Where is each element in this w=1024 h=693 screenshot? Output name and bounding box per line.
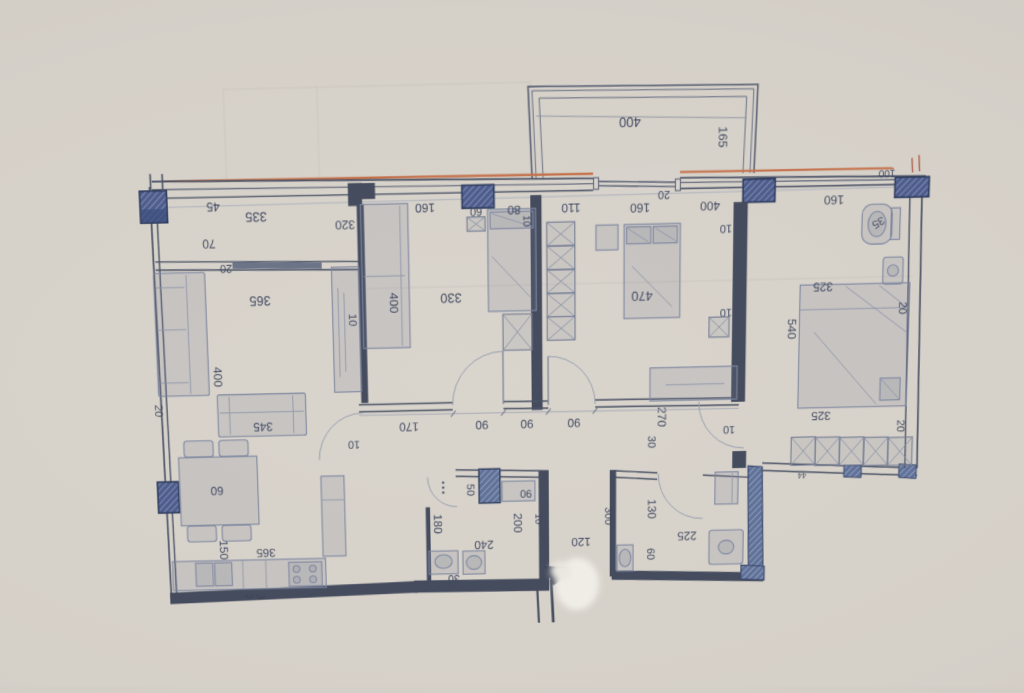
svg-text:120: 120 bbox=[571, 535, 590, 548]
svg-text:345: 345 bbox=[253, 420, 273, 434]
svg-text:160: 160 bbox=[824, 192, 844, 206]
svg-text:30: 30 bbox=[448, 572, 460, 584]
svg-text:70: 70 bbox=[202, 237, 216, 251]
svg-text:400: 400 bbox=[387, 293, 400, 314]
svg-text:10: 10 bbox=[346, 314, 358, 327]
svg-text:10: 10 bbox=[347, 438, 360, 451]
svg-text:165: 165 bbox=[716, 126, 730, 148]
svg-text:400: 400 bbox=[700, 198, 720, 212]
svg-text:325: 325 bbox=[813, 280, 833, 294]
svg-text:365: 365 bbox=[249, 293, 271, 308]
svg-text:325: 325 bbox=[811, 409, 831, 423]
svg-text:160: 160 bbox=[630, 200, 650, 214]
svg-text:90: 90 bbox=[475, 418, 488, 432]
svg-text:300: 300 bbox=[602, 507, 614, 526]
svg-text:470: 470 bbox=[631, 288, 653, 303]
svg-text:540: 540 bbox=[785, 319, 798, 340]
svg-text:100: 100 bbox=[878, 167, 895, 179]
svg-text:10: 10 bbox=[722, 423, 735, 436]
svg-text:150: 150 bbox=[217, 540, 230, 560]
svg-text:180: 180 bbox=[431, 514, 444, 534]
svg-text:10: 10 bbox=[533, 513, 544, 524]
svg-text:20: 20 bbox=[152, 405, 165, 418]
svg-text:10: 10 bbox=[719, 222, 732, 235]
svg-text:160: 160 bbox=[415, 200, 435, 214]
svg-text:200: 200 bbox=[511, 513, 524, 533]
svg-text:20: 20 bbox=[219, 262, 232, 275]
svg-text:400: 400 bbox=[211, 367, 225, 388]
svg-text:30: 30 bbox=[645, 436, 657, 449]
svg-text:60: 60 bbox=[469, 205, 482, 218]
svg-text:130: 130 bbox=[645, 499, 658, 519]
svg-text:60: 60 bbox=[210, 484, 223, 497]
svg-text:80: 80 bbox=[507, 203, 520, 217]
svg-text:10: 10 bbox=[520, 215, 531, 227]
svg-text:20: 20 bbox=[896, 302, 909, 315]
svg-text:365: 365 bbox=[256, 546, 276, 559]
svg-text:240: 240 bbox=[474, 538, 493, 551]
svg-text:90: 90 bbox=[520, 487, 532, 499]
svg-text:330: 330 bbox=[440, 290, 462, 305]
svg-text:20: 20 bbox=[894, 420, 906, 433]
svg-text:20: 20 bbox=[657, 188, 670, 201]
svg-text:170: 170 bbox=[399, 420, 419, 434]
svg-text:44: 44 bbox=[797, 471, 806, 481]
svg-text:110: 110 bbox=[561, 200, 580, 214]
svg-text:335: 335 bbox=[245, 209, 267, 224]
svg-text:50: 50 bbox=[464, 484, 476, 497]
svg-text:60: 60 bbox=[644, 548, 656, 561]
svg-text:90: 90 bbox=[567, 416, 580, 430]
svg-text:320: 320 bbox=[335, 217, 355, 231]
svg-text:90: 90 bbox=[520, 417, 533, 431]
svg-text:225: 225 bbox=[677, 529, 696, 542]
svg-text:400: 400 bbox=[619, 114, 641, 130]
svg-text:45: 45 bbox=[206, 200, 220, 214]
